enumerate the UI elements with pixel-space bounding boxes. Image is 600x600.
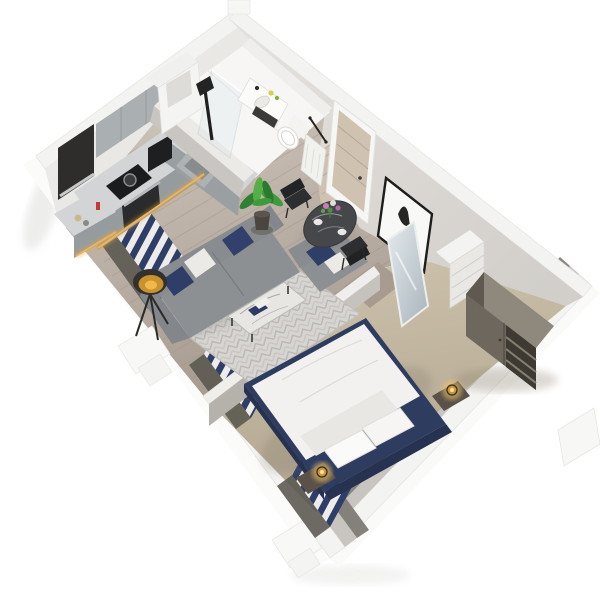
white-structural-block-east	[558, 408, 600, 466]
plate	[338, 229, 347, 235]
jar	[83, 220, 89, 226]
plate	[314, 219, 323, 225]
white-structural-block-north	[228, 0, 250, 14]
toiletry	[275, 96, 279, 100]
toiletry	[255, 86, 259, 90]
door-handle	[358, 176, 362, 180]
red-bottle	[96, 202, 100, 210]
jar	[75, 215, 82, 222]
floorplan-render	[0, 0, 600, 600]
pot	[124, 174, 136, 186]
apartment-3d-floorplan	[0, 0, 600, 600]
toiletry	[268, 90, 273, 95]
